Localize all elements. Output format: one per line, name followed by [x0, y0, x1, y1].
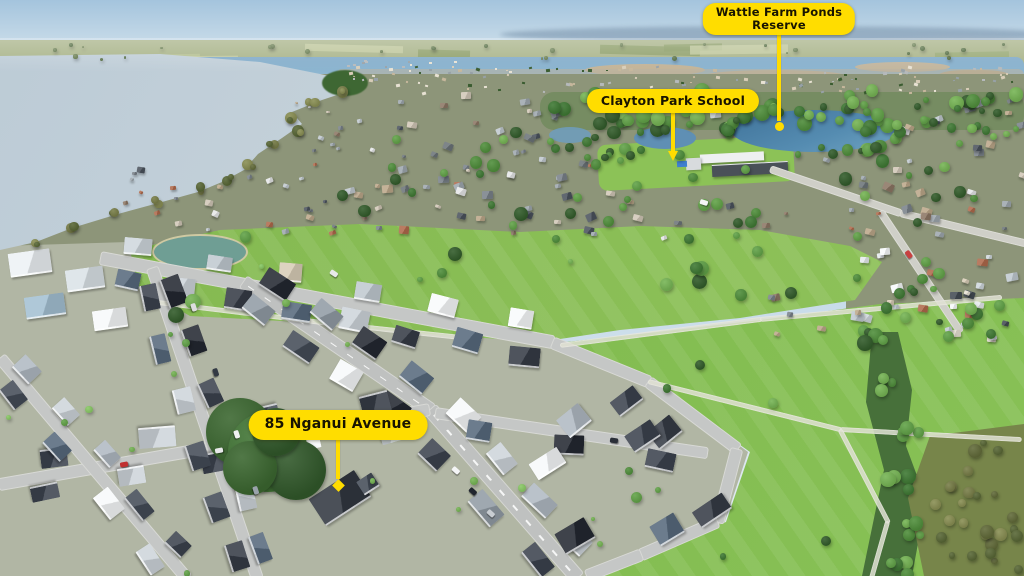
house	[399, 226, 410, 235]
house	[473, 120, 480, 125]
tree	[962, 318, 973, 329]
tree	[958, 499, 966, 507]
house	[376, 226, 382, 230]
tree	[993, 109, 1002, 118]
aerial-photo: Wattle Farm Ponds Reserve Clayton Park S…	[0, 0, 1024, 576]
tree	[821, 536, 831, 546]
house	[817, 325, 826, 332]
tree	[720, 553, 727, 560]
leader-tip-circle	[775, 122, 784, 131]
distant-house	[690, 82, 692, 84]
house	[762, 222, 770, 227]
leader-line	[671, 111, 674, 152]
tree	[61, 419, 68, 426]
house	[539, 156, 546, 161]
tree	[842, 144, 853, 155]
tree	[124, 56, 127, 59]
distant-house	[448, 71, 451, 74]
house	[174, 197, 178, 200]
house	[353, 281, 382, 303]
distant-house	[808, 81, 811, 83]
tree	[785, 287, 797, 299]
distant-house	[408, 61, 411, 63]
tree	[510, 127, 521, 138]
tree	[847, 96, 860, 109]
tree	[672, 56, 677, 61]
house	[330, 142, 335, 145]
label-clayton-park-school: Clayton Park School	[587, 89, 759, 113]
tree	[53, 48, 57, 52]
tree	[266, 141, 272, 147]
distant-house	[353, 64, 356, 66]
house	[137, 166, 146, 173]
tree	[910, 288, 918, 296]
tree	[913, 427, 924, 438]
tree	[907, 52, 910, 55]
house	[950, 304, 957, 309]
tree	[287, 117, 293, 123]
tree	[69, 222, 78, 231]
tree	[488, 201, 496, 209]
tree	[637, 146, 645, 154]
tree	[930, 499, 941, 510]
leader-line	[336, 438, 339, 479]
house	[406, 121, 417, 129]
tree	[603, 216, 614, 227]
distant-house	[909, 92, 912, 94]
distant-house	[856, 88, 859, 90]
tree	[297, 129, 304, 136]
house	[591, 232, 597, 236]
tree	[870, 142, 882, 154]
distant-house	[761, 81, 766, 84]
tree	[388, 163, 396, 171]
tree	[1009, 87, 1024, 102]
tree	[881, 302, 892, 313]
tree	[620, 43, 623, 46]
tree	[936, 319, 943, 326]
distant-house	[844, 74, 847, 76]
tree	[632, 181, 642, 191]
distant-house	[851, 79, 853, 81]
tree	[550, 48, 555, 53]
tree	[985, 548, 996, 559]
distant-house	[830, 83, 833, 85]
distant-house	[410, 64, 413, 66]
distant-house	[435, 73, 439, 77]
distant-house	[497, 89, 500, 91]
distant-house	[364, 60, 367, 62]
tree	[970, 195, 978, 203]
distant-house	[347, 65, 350, 67]
distant-house	[736, 79, 738, 81]
tree	[900, 469, 915, 484]
distant-house	[635, 77, 637, 79]
tree	[432, 47, 435, 50]
tree	[518, 484, 526, 492]
tree	[722, 125, 734, 137]
tree	[690, 262, 703, 275]
house	[423, 184, 430, 188]
house	[861, 175, 866, 179]
distant-house	[429, 62, 432, 64]
house	[132, 172, 137, 175]
tree	[661, 125, 671, 135]
house	[855, 310, 862, 315]
distant-house	[506, 69, 508, 71]
tree	[591, 159, 601, 169]
tree	[547, 138, 554, 145]
house	[849, 208, 854, 212]
tree	[886, 558, 896, 568]
tree	[839, 172, 852, 185]
tree	[626, 151, 635, 160]
tree	[906, 172, 913, 179]
distant-house	[483, 86, 486, 88]
distant-house	[832, 80, 834, 82]
tree	[954, 186, 965, 197]
tree	[259, 264, 264, 269]
leader-tip-arrow	[668, 151, 678, 161]
house	[508, 346, 541, 369]
distant-house	[1011, 80, 1013, 82]
tree	[663, 384, 671, 392]
tree	[963, 466, 973, 476]
house	[917, 304, 928, 313]
distant-house	[495, 68, 498, 70]
distant-house	[392, 73, 395, 75]
distant-house	[452, 66, 455, 68]
house	[381, 184, 392, 193]
car	[610, 437, 619, 443]
tree	[857, 335, 872, 350]
house	[466, 419, 493, 443]
tree	[894, 288, 905, 299]
house	[476, 216, 485, 222]
tree	[968, 444, 982, 458]
school-shade-sail	[677, 161, 687, 168]
distant-house	[982, 79, 985, 81]
tree	[994, 300, 1005, 311]
tree	[900, 421, 914, 435]
tree	[880, 472, 895, 487]
tree	[936, 532, 947, 543]
house	[860, 256, 870, 263]
tree	[637, 128, 644, 135]
house	[973, 144, 983, 151]
distant-house	[901, 68, 905, 71]
tree	[980, 440, 987, 447]
tree	[601, 154, 608, 161]
distant-house	[468, 84, 472, 87]
house	[507, 307, 534, 330]
house	[554, 220, 561, 225]
tree	[437, 268, 446, 277]
tree	[909, 516, 924, 531]
house	[401, 154, 406, 158]
distant-house	[883, 72, 888, 75]
tree	[888, 378, 897, 387]
distant-house	[914, 76, 916, 78]
distant-house	[716, 76, 720, 79]
label-wattle-farm-ponds-reserve: Wattle Farm Ponds Reserve	[703, 3, 855, 35]
farm-field	[690, 44, 788, 54]
distant-house	[899, 83, 903, 86]
house	[1002, 227, 1007, 231]
house	[950, 292, 962, 299]
tree	[990, 133, 997, 140]
tree	[768, 398, 778, 408]
leader-line	[777, 33, 780, 121]
tree	[818, 144, 825, 151]
distant-house	[997, 66, 1002, 70]
house	[397, 125, 403, 130]
tree	[863, 108, 871, 116]
distant-house	[362, 62, 365, 64]
tree	[980, 525, 993, 538]
distant-house	[934, 90, 936, 92]
tree	[593, 117, 606, 130]
distant-house	[599, 83, 603, 86]
distant-house	[913, 82, 918, 86]
tree	[476, 170, 484, 178]
house	[439, 102, 447, 108]
tree	[129, 447, 134, 452]
tree	[470, 477, 478, 485]
distant-house	[973, 68, 977, 71]
house	[438, 176, 449, 183]
house	[482, 191, 493, 199]
label-85-nganui-avenue: 85 Nganui Avenue	[249, 410, 428, 440]
tree	[6, 415, 11, 420]
tree	[622, 115, 633, 126]
tree	[752, 246, 763, 257]
tree	[920, 46, 925, 51]
tree	[875, 384, 888, 397]
tree	[921, 257, 931, 267]
tree	[967, 551, 977, 561]
tree	[871, 108, 885, 122]
tree	[514, 207, 528, 221]
tree	[69, 43, 73, 47]
tree	[182, 339, 190, 347]
tree	[745, 216, 757, 228]
tree	[358, 205, 371, 218]
distant-house	[353, 78, 355, 80]
tree	[380, 50, 383, 53]
distant-house	[555, 68, 558, 70]
tree	[345, 342, 350, 347]
house	[527, 109, 533, 113]
house	[921, 212, 932, 220]
distant-house	[409, 70, 412, 72]
house	[787, 311, 794, 317]
tree	[901, 568, 914, 576]
house	[122, 200, 128, 205]
distant-house	[955, 77, 958, 79]
distant-house	[454, 61, 457, 63]
house	[138, 425, 176, 448]
tree	[617, 157, 624, 164]
distant-house	[389, 68, 394, 71]
house	[266, 221, 273, 227]
tree	[991, 491, 998, 498]
distant-house	[915, 80, 919, 83]
tree	[417, 277, 422, 282]
tree	[967, 124, 977, 134]
tree	[390, 174, 400, 184]
distant-house	[509, 71, 512, 73]
distant-house	[582, 70, 584, 72]
tree	[735, 289, 746, 300]
house	[880, 248, 890, 256]
distant-house	[385, 66, 388, 68]
tree	[703, 43, 706, 46]
distant-house	[681, 82, 685, 85]
tree	[965, 303, 977, 315]
tree	[110, 208, 119, 217]
tree	[930, 286, 936, 292]
tree	[900, 312, 911, 323]
tree	[228, 174, 234, 180]
distant-house	[965, 88, 968, 90]
distant-house	[418, 82, 420, 84]
tree	[282, 299, 290, 307]
distant-house	[628, 68, 633, 71]
tree	[568, 259, 573, 264]
tree	[860, 191, 869, 200]
tree	[916, 531, 924, 539]
house	[985, 140, 995, 149]
house	[398, 99, 404, 103]
tree	[954, 105, 961, 112]
tree	[1011, 530, 1023, 542]
tree	[733, 117, 740, 124]
tree	[565, 208, 576, 219]
tree	[892, 120, 902, 130]
distant-house	[993, 80, 996, 83]
tree	[487, 159, 499, 171]
tree	[340, 88, 346, 94]
house	[893, 167, 902, 173]
tree	[484, 44, 488, 48]
house	[375, 184, 381, 189]
tree	[305, 49, 310, 54]
house	[1005, 111, 1012, 116]
distant-house	[1006, 73, 1009, 75]
house	[510, 231, 516, 236]
distant-house	[606, 70, 608, 71]
tree	[961, 48, 965, 52]
distant-house	[374, 78, 378, 81]
house	[123, 237, 152, 257]
tree	[509, 221, 518, 230]
tree	[240, 231, 251, 242]
tree	[85, 406, 92, 413]
distant-house	[419, 72, 421, 74]
tree	[250, 164, 256, 170]
tree	[853, 274, 861, 282]
house	[977, 258, 989, 266]
tree	[973, 492, 981, 500]
tree	[914, 103, 921, 110]
school-canopy	[686, 158, 702, 171]
tree	[794, 106, 805, 117]
tree	[73, 54, 77, 58]
tree	[793, 48, 798, 53]
tree	[878, 373, 889, 384]
house	[461, 92, 471, 99]
tree	[903, 484, 914, 495]
tree	[820, 103, 827, 110]
distant-house	[429, 69, 432, 71]
distant-house	[838, 89, 841, 92]
distant-house	[507, 73, 509, 75]
tree	[945, 482, 955, 492]
tree	[866, 84, 879, 97]
tree	[876, 154, 889, 167]
tree	[993, 446, 1003, 456]
tree	[981, 97, 990, 106]
tree	[733, 218, 743, 228]
house	[216, 184, 223, 190]
distant-house	[402, 66, 405, 68]
tree	[1003, 131, 1010, 138]
tree	[688, 173, 697, 182]
tree	[499, 135, 508, 144]
tree	[917, 274, 928, 285]
tree	[184, 570, 191, 576]
tree	[541, 57, 543, 59]
distant-house	[467, 88, 469, 90]
distant-house	[744, 77, 748, 80]
tree	[947, 123, 956, 132]
tree	[931, 193, 940, 202]
